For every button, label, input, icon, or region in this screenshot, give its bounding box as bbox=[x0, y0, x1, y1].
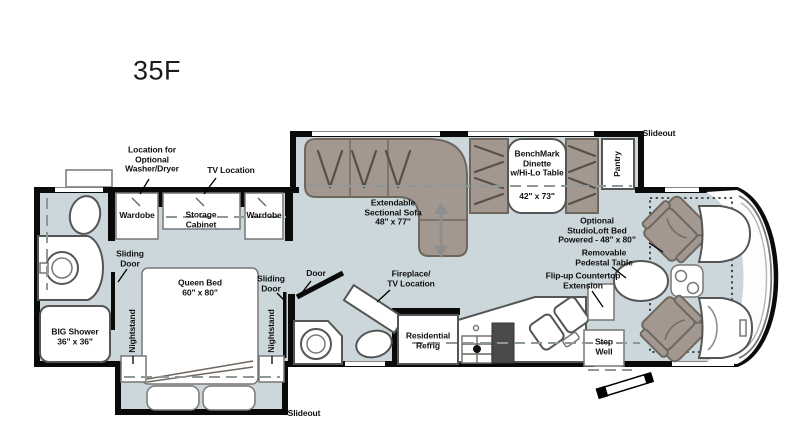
label-nightstand-right: Nightstand bbox=[267, 309, 277, 352]
label-slideout-top: Slideout bbox=[643, 129, 676, 139]
sliding-door-left-panel bbox=[111, 272, 115, 330]
label-flipup-countertop: Flip-up Countertop Extension bbox=[546, 271, 621, 290]
label-residential-refrig: Residential Refrig bbox=[406, 331, 450, 350]
sliding-door-right-panel bbox=[283, 292, 287, 358]
entry-door-open bbox=[596, 372, 655, 399]
burner-knob bbox=[473, 345, 481, 353]
pillow-right bbox=[203, 386, 255, 410]
label-door: Door bbox=[306, 269, 325, 279]
label-washer-dryer: Location for Optional Washer/Dryer bbox=[125, 146, 179, 175]
label-nightstand-left: Nightstand bbox=[128, 309, 138, 352]
label-big-shower: BIG Shower 36" x 36" bbox=[51, 327, 98, 346]
label-fireplace: Fireplace/ TV Location bbox=[387, 269, 435, 288]
cupholder bbox=[676, 271, 687, 282]
label-sofa: Extendable Sectional Sofa 48" x 77" bbox=[364, 199, 421, 228]
label-queen-bed: Queen Bed 60" x 80" bbox=[178, 278, 222, 297]
label-pantry: Pantry bbox=[613, 151, 623, 177]
label-step-well: Step Well bbox=[595, 337, 613, 356]
label-sliding-door-right: Sliding Door bbox=[257, 274, 285, 293]
label-sliding-door-left: Sliding Door bbox=[116, 249, 144, 268]
pillow-left bbox=[147, 386, 199, 410]
label-studioloft-bed: Optional StudioLoft Bed Powered - 48" x … bbox=[558, 217, 636, 246]
label-pedestal-table: Removable Pedestal Table bbox=[575, 248, 633, 267]
label-wardrobe-left: Wardobe bbox=[119, 211, 154, 221]
label-dinette: BenchMark Dinette w/Hi-Lo Table bbox=[510, 150, 563, 179]
label-dinette-size: 42" x 73" bbox=[519, 192, 555, 202]
label-tv-location: TV Location bbox=[207, 166, 255, 176]
dash-slot bbox=[740, 320, 746, 336]
label-storage-cabinet: Storage Cabinet bbox=[186, 210, 217, 229]
floorplan-canvas: 35F Location for Optional Washer/Dryer T… bbox=[0, 0, 800, 446]
vent-knob bbox=[474, 326, 479, 331]
floorplan-title: 35F bbox=[133, 56, 181, 87]
cupholder bbox=[688, 283, 699, 294]
label-slideout-bottom: Slideout bbox=[288, 409, 321, 419]
passenger-dash bbox=[699, 206, 750, 262]
center-console bbox=[671, 265, 703, 297]
label-wardrobe-right: Wardobe bbox=[246, 211, 281, 221]
roof-vent bbox=[66, 170, 112, 187]
